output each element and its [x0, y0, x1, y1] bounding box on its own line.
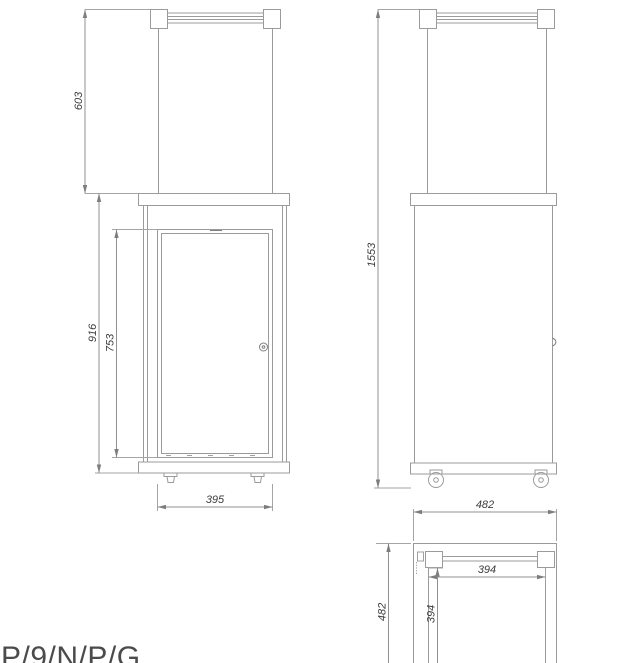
dim-label-door-height: 753 — [105, 333, 117, 352]
dim-label-body-height: 916 — [87, 323, 99, 342]
model-code-label: P/9/N/P/G — [1, 641, 141, 663]
side-handle-profile — [553, 338, 556, 346]
front-dim-glass-height: 603 — [73, 10, 151, 194]
dim-label-inner-depth: 394 — [426, 605, 438, 623]
top-dim-inner-width: 394 — [429, 564, 546, 581]
front-plinth — [139, 462, 290, 473]
side-top-left-cap — [420, 10, 437, 29]
top-dim-outer-width: 482 — [414, 499, 557, 541]
side-dim-total-height: 1553 — [366, 10, 420, 489]
front-dim-door-height: 753 — [105, 230, 158, 458]
front-dim-body-height: 916 — [87, 194, 139, 474]
side-top-right-cap — [538, 10, 555, 29]
dim-label-front-width: 395 — [206, 494, 225, 506]
door-handle-knob — [260, 343, 268, 351]
side-glass-frame — [420, 10, 555, 194]
top-view: 482 394 482 394 — [376, 499, 557, 663]
top-bracket-detail — [418, 552, 424, 561]
front-view: 603 916 753 395 — [73, 10, 290, 512]
dim-label-outer-depth: 482 — [377, 603, 389, 621]
front-top-left-cap — [151, 10, 168, 29]
front-door-frame — [158, 230, 273, 458]
side-cabinet — [411, 194, 557, 488]
front-cabinet-body — [144, 206, 287, 463]
front-right-foot — [251, 473, 264, 483]
front-dim-width: 395 — [158, 484, 273, 511]
side-cabinet-cap — [411, 194, 557, 206]
side-top-bar-lower — [437, 20, 538, 24]
side-view: 1553 — [366, 10, 557, 489]
drawing-canvas: 603 916 753 395 — [0, 0, 624, 663]
front-top-right-cap — [264, 10, 281, 29]
side-rear-caster — [534, 470, 549, 488]
front-cabinet — [139, 194, 290, 483]
side-top-bar-upper — [437, 13, 538, 17]
top-right-corner-cap — [538, 552, 555, 568]
door-handle-pin — [262, 346, 265, 349]
front-cabinet-cap — [139, 194, 290, 206]
dim-label-glass-height: 603 — [73, 91, 85, 110]
dim-label-inner-width: 394 — [478, 564, 496, 576]
dim-label-outer-width: 482 — [476, 499, 494, 511]
side-cabinet-body — [415, 206, 553, 464]
dim-label-total-height: 1553 — [366, 242, 378, 267]
top-left-corner-cap — [426, 552, 443, 568]
side-front-caster — [429, 470, 444, 488]
front-left-foot — [164, 473, 177, 483]
top-dim-outer-depth: 482 — [376, 544, 411, 663]
technical-drawing: 603 916 753 395 — [0, 0, 624, 663]
front-top-bar-lower — [168, 20, 264, 24]
front-top-bar-upper — [168, 13, 264, 17]
front-door-glass — [162, 234, 269, 454]
front-glass-frame — [151, 10, 281, 194]
